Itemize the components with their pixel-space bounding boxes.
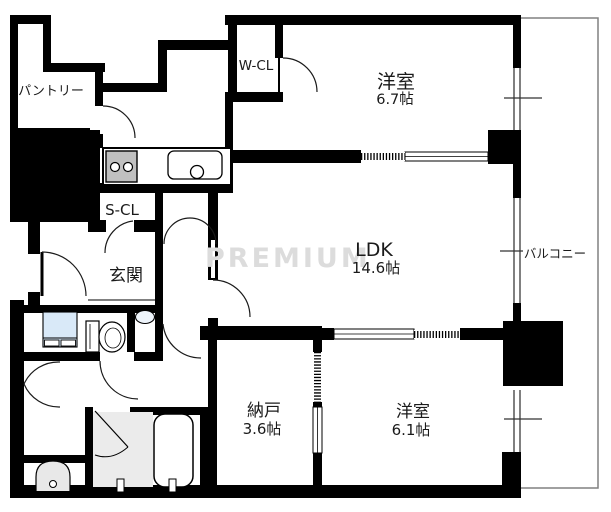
wall [502, 452, 514, 486]
label-entrance: 玄関 [109, 266, 143, 286]
door-arc-corridor-left [164, 218, 190, 244]
label-balcony: バルコニー [524, 246, 586, 261]
wall [155, 333, 163, 361]
door-arc-washroom [163, 324, 201, 358]
door-handle [117, 479, 124, 492]
wash-basin [33, 461, 73, 492]
door-arc-entrance [42, 252, 86, 296]
wall [460, 328, 503, 340]
wall [313, 453, 322, 485]
wall [513, 452, 521, 486]
wall [513, 303, 521, 323]
structural-block [10, 128, 90, 222]
stove-burner [111, 163, 120, 172]
wall [225, 150, 361, 163]
window [513, 390, 521, 452]
door-arc-powder [100, 361, 138, 399]
wall [228, 92, 283, 102]
wall [313, 402, 322, 407]
wall [228, 25, 237, 102]
wall [43, 63, 105, 72]
size-storage: 3.6帖 [243, 420, 282, 438]
bifold-door-arc [24, 384, 60, 407]
wall [85, 413, 93, 487]
size-bedroom61: 6.1帖 [392, 421, 431, 439]
bath-floor [93, 412, 153, 487]
wall [158, 40, 230, 50]
kitchen [103, 148, 231, 185]
label-wcl: W-CL [239, 58, 274, 74]
floor-plan-svg: PREMIUM パントリー W-CL 洋室 6.7帖 S-CL LDK 14.6… [0, 0, 611, 512]
wall [24, 352, 100, 361]
door-arc-shoe-closet [105, 221, 133, 253]
wall [155, 190, 163, 333]
wall [10, 15, 18, 130]
wall [200, 326, 322, 340]
door-arc-ldk [213, 280, 250, 317]
wall [313, 332, 322, 352]
size-bedroom67: 6.7帖 [376, 91, 414, 108]
hand-basin [136, 311, 155, 324]
label-scl: S-CL [105, 201, 139, 219]
label-bedroom61: 洋室 [396, 402, 430, 422]
toilet [86, 321, 125, 352]
wall [200, 407, 210, 485]
wall [513, 163, 521, 198]
wall [28, 222, 40, 254]
wall [88, 220, 106, 232]
door-arc-pantry [103, 106, 135, 138]
wall [225, 15, 521, 25]
wall [275, 25, 283, 58]
bifold-door-arc [24, 362, 60, 384]
wall [513, 25, 521, 68]
pillar [488, 130, 521, 164]
wall [127, 313, 135, 352]
floor-plan: PREMIUM パントリー W-CL 洋室 6.7帖 S-CL LDK 14.6… [0, 0, 611, 512]
sanitary [33, 300, 193, 492]
label-bedroom67: 洋室 [377, 71, 415, 93]
wall [100, 83, 167, 92]
label-storage: 納戸 [247, 401, 281, 421]
stove-burner [124, 163, 133, 172]
window [513, 68, 521, 130]
door-handle [169, 479, 176, 492]
label-ldk: LDK [355, 239, 393, 261]
pillar [503, 321, 563, 386]
bathtub [154, 414, 193, 487]
wall [88, 130, 100, 222]
size-ldk: 14.6帖 [352, 259, 400, 277]
wall [10, 300, 24, 492]
watermark: PREMIUM [205, 243, 371, 274]
wall [322, 328, 334, 340]
door-arc-wcl [283, 58, 317, 92]
label-pantry: パントリー [18, 84, 84, 99]
sink-drain [191, 166, 204, 179]
